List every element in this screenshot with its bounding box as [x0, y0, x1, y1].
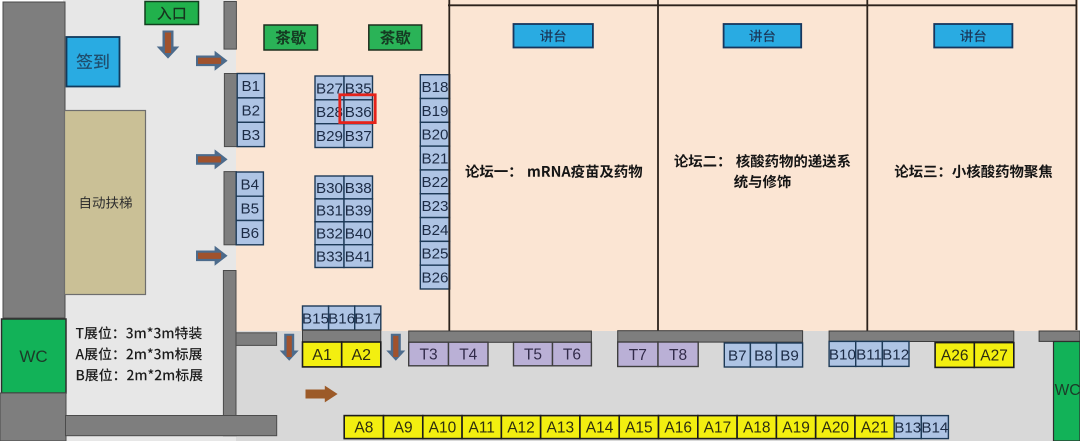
- svg-text:B29: B29: [316, 128, 343, 145]
- svg-text:B22: B22: [421, 174, 448, 191]
- svg-text:B38: B38: [345, 180, 372, 197]
- svg-text:B15: B15: [302, 310, 329, 327]
- svg-text:B16: B16: [328, 310, 355, 327]
- svg-text:B10: B10: [829, 346, 856, 363]
- svg-text:A16: A16: [664, 420, 692, 437]
- svg-text:B39: B39: [345, 203, 372, 220]
- svg-text:B1: B1: [242, 78, 261, 95]
- svg-text:A19: A19: [782, 420, 810, 437]
- svg-text:B33: B33: [316, 249, 343, 266]
- svg-text:B24: B24: [421, 222, 448, 239]
- svg-text:B19: B19: [421, 103, 448, 120]
- svg-text:T7: T7: [629, 347, 647, 364]
- svg-text:A26: A26: [941, 348, 969, 365]
- svg-text:B9: B9: [780, 347, 799, 364]
- svg-text:B7: B7: [728, 347, 747, 364]
- svg-text:B30: B30: [316, 180, 343, 197]
- svg-text:B4: B4: [241, 177, 260, 194]
- svg-text:WC: WC: [1055, 382, 1080, 399]
- svg-text:B14: B14: [921, 420, 948, 437]
- svg-text:A15: A15: [625, 420, 653, 437]
- svg-text:B17: B17: [354, 310, 381, 327]
- svg-text:A27: A27: [980, 348, 1008, 365]
- svg-text:B36: B36: [345, 104, 372, 121]
- svg-text:B5: B5: [241, 201, 260, 218]
- svg-text:B26: B26: [421, 270, 448, 287]
- svg-text:T4: T4: [459, 347, 477, 364]
- svg-text:B11: B11: [856, 346, 882, 363]
- svg-text:B3: B3: [242, 127, 261, 144]
- svg-text:A1: A1: [312, 347, 332, 364]
- svg-text:B23: B23: [421, 198, 448, 215]
- svg-text:B25: B25: [421, 246, 448, 263]
- svg-text:T6: T6: [563, 347, 581, 364]
- svg-text:A18: A18: [743, 420, 771, 437]
- svg-text:B32: B32: [316, 226, 343, 243]
- svg-text:B40: B40: [345, 226, 372, 243]
- svg-text:B37: B37: [345, 128, 372, 145]
- svg-text:T8: T8: [669, 347, 687, 364]
- svg-text:B18: B18: [421, 79, 448, 96]
- svg-text:B6: B6: [241, 225, 260, 242]
- svg-text:B12: B12: [882, 346, 909, 363]
- svg-text:B31: B31: [316, 203, 343, 220]
- svg-text:B8: B8: [754, 347, 773, 364]
- svg-text:A10: A10: [429, 420, 457, 437]
- svg-text:A17: A17: [704, 420, 732, 437]
- svg-text:B13: B13: [894, 420, 921, 437]
- svg-text:A21: A21: [861, 420, 889, 437]
- svg-text:A12: A12: [507, 420, 535, 437]
- svg-text:A20: A20: [822, 420, 850, 437]
- svg-text:T3: T3: [420, 347, 438, 364]
- svg-text:A13: A13: [546, 420, 574, 437]
- svg-text:A14: A14: [586, 420, 614, 437]
- svg-text:WC: WC: [19, 347, 47, 366]
- svg-text:B41: B41: [345, 249, 372, 266]
- svg-text:A9: A9: [394, 420, 413, 437]
- svg-text:T5: T5: [524, 347, 542, 364]
- svg-text:A2: A2: [351, 347, 371, 364]
- svg-text:A11: A11: [468, 420, 494, 437]
- svg-text:B21: B21: [421, 150, 448, 167]
- svg-text:B20: B20: [421, 127, 448, 144]
- svg-text:A8: A8: [354, 420, 373, 437]
- svg-text:B2: B2: [242, 103, 261, 120]
